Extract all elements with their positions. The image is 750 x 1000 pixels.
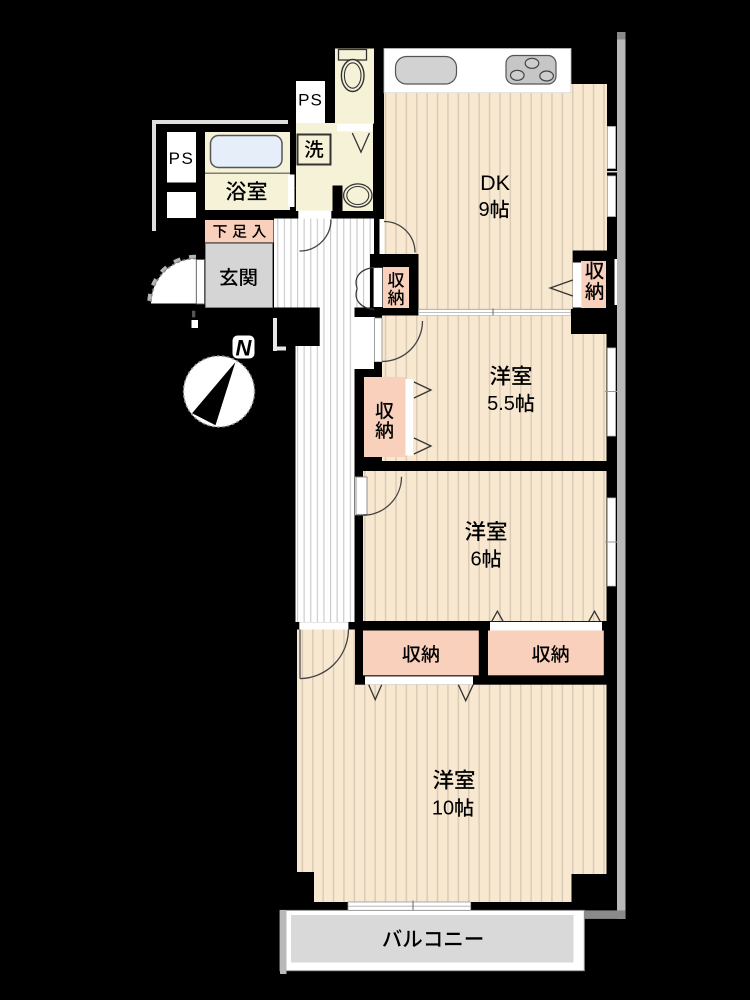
svg-text:DK: DK bbox=[480, 171, 511, 195]
svg-text:5.5: 5.5 bbox=[487, 393, 515, 415]
svg-text:PS: PS bbox=[298, 91, 323, 110]
svg-text:6: 6 bbox=[470, 549, 481, 571]
svg-text:9: 9 bbox=[478, 199, 489, 221]
svg-text:PS: PS bbox=[169, 149, 195, 168]
svg-text:N: N bbox=[236, 336, 253, 361]
svg-text:10: 10 bbox=[432, 798, 454, 820]
